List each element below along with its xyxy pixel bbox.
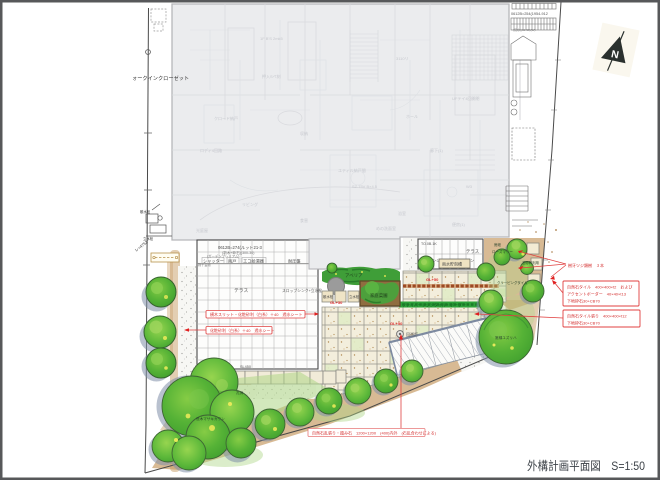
svg-text:自然石乱張り・踏み石 1200×1200 (400)内外 (: 自然石乱張り・踏み石 1200×1200 (400)内外 (石乱合わせによる) bbox=[312, 430, 437, 436]
svg-text:1F B'S 2mk5: 1F B'S 2mk5 bbox=[260, 36, 284, 41]
svg-text:自然石タイル 400×400×t2 および: 自然石タイル 400×400×t2 および bbox=[567, 284, 632, 290]
svg-text:物干金物: 物干金物 bbox=[198, 262, 212, 267]
svg-text:樹牙ツジ類樹 ３本: 樹牙ツジ類樹 ３本 bbox=[568, 262, 604, 268]
svg-text:横木スリット・化粧砂利（白系）＋40 透水シート: 横木スリット・化粧砂利（白系）＋40 透水シート bbox=[210, 311, 302, 317]
svg-text:廊下(1): 廊下(1) bbox=[430, 147, 444, 153]
svg-text:GL+50: GL+50 bbox=[390, 321, 403, 326]
svg-text:クリーピングタイム: クリーピングタイム bbox=[497, 280, 528, 285]
svg-text:光庭屋: 光庭屋 bbox=[196, 227, 208, 233]
svg-text:家庭菜園: 家庭菜園 bbox=[370, 292, 388, 299]
svg-text:下地砕石30+CB70: 下地砕石30+CB70 bbox=[567, 298, 601, 304]
svg-text:下地砕石30+CB70: 下地砕石30+CB70 bbox=[567, 320, 601, 326]
svg-text:SZ.75V B×4.5: SZ.75V B×4.5 bbox=[352, 184, 378, 189]
svg-text:W3: W3 bbox=[466, 184, 473, 189]
svg-text:GL+50: GL+50 bbox=[426, 277, 439, 282]
svg-text:SL450: SL450 bbox=[240, 365, 251, 369]
svg-text:孔洲: 孔洲 bbox=[236, 390, 244, 395]
svg-text:耐圧盤: 耐圧盤 bbox=[288, 258, 301, 265]
svg-text:回遊灯: 回遊灯 bbox=[406, 331, 418, 337]
svg-text:リビング: リビング bbox=[242, 201, 258, 207]
svg-text:低木マサキカウン: 低木マサキカウン bbox=[196, 416, 225, 421]
svg-text:外構計画平面図 S=1:50: 外構計画平面図 S=1:50 bbox=[527, 458, 645, 473]
svg-text:ローズマリー: ローズマリー bbox=[492, 249, 513, 254]
svg-text:0612B=274(ルット21-3: 0612B=274(ルット21-3 bbox=[218, 245, 263, 250]
svg-text:クロード納戸: クロード納戸 bbox=[214, 115, 238, 121]
svg-text:0612B=254(1954-912: 0612B=254(1954-912 bbox=[511, 12, 548, 16]
svg-text:便房(1): 便房(1) bbox=[452, 221, 466, 227]
svg-text:散水栓: 散水栓 bbox=[323, 294, 334, 299]
svg-text:立水栓: 立水栓 bbox=[349, 294, 360, 299]
svg-text:GL+50: GL+50 bbox=[330, 300, 343, 305]
svg-text:(用水)(30-38)(W): (用水)(30-38)(W) bbox=[513, 27, 536, 32]
svg-text:玉砂利利用: 玉砂利利用 bbox=[522, 260, 539, 265]
svg-text:ホール: ホール bbox=[406, 114, 418, 119]
svg-text:UFテイ4回開閉: UFテイ4回開閉 bbox=[452, 95, 480, 101]
svg-text:化粧砂利（白系）＋40 透水シート: 化粧砂利（白系）＋40 透水シート bbox=[210, 327, 274, 333]
svg-text:房総: 房総 bbox=[494, 242, 502, 247]
svg-text:TO.0B.1K: TO.0B.1K bbox=[421, 242, 437, 246]
svg-text:押入Sペ刻: 押入Sペ刻 bbox=[262, 73, 281, 79]
svg-text:めの洗面室: めの洗面室 bbox=[376, 225, 396, 231]
svg-text:散水栓: 散水栓 bbox=[140, 209, 151, 214]
svg-text:収納: 収納 bbox=[300, 130, 308, 136]
svg-text:スロップシンク+立水栓: スロップシンク+立水栓 bbox=[282, 288, 322, 293]
svg-text:ロディ4回路: ロディ4回路 bbox=[200, 147, 222, 153]
svg-text:自然石タイル張り 400×400×t12: 自然石タイル張り 400×400×t12 bbox=[567, 313, 627, 319]
svg-text:アクセントボーダー 40×40×t13: アクセントボーダー 40×40×t13 bbox=[567, 291, 627, 297]
svg-text:ユティル納戸間: ユティル納戸間 bbox=[338, 167, 366, 173]
svg-text:ォークインクローゼット: ォークインクローゼット bbox=[132, 74, 189, 82]
svg-text:浴室: 浴室 bbox=[398, 210, 406, 216]
svg-text:食害: 食害 bbox=[300, 217, 308, 223]
svg-text:常緑ユズリハ: 常緑ユズリハ bbox=[495, 335, 517, 340]
svg-text:雨水貯刻槽: 雨水貯刻槽 bbox=[442, 261, 462, 267]
svg-text:テラス: テラス bbox=[234, 288, 248, 294]
svg-text:3110リ: 3110リ bbox=[396, 56, 409, 61]
